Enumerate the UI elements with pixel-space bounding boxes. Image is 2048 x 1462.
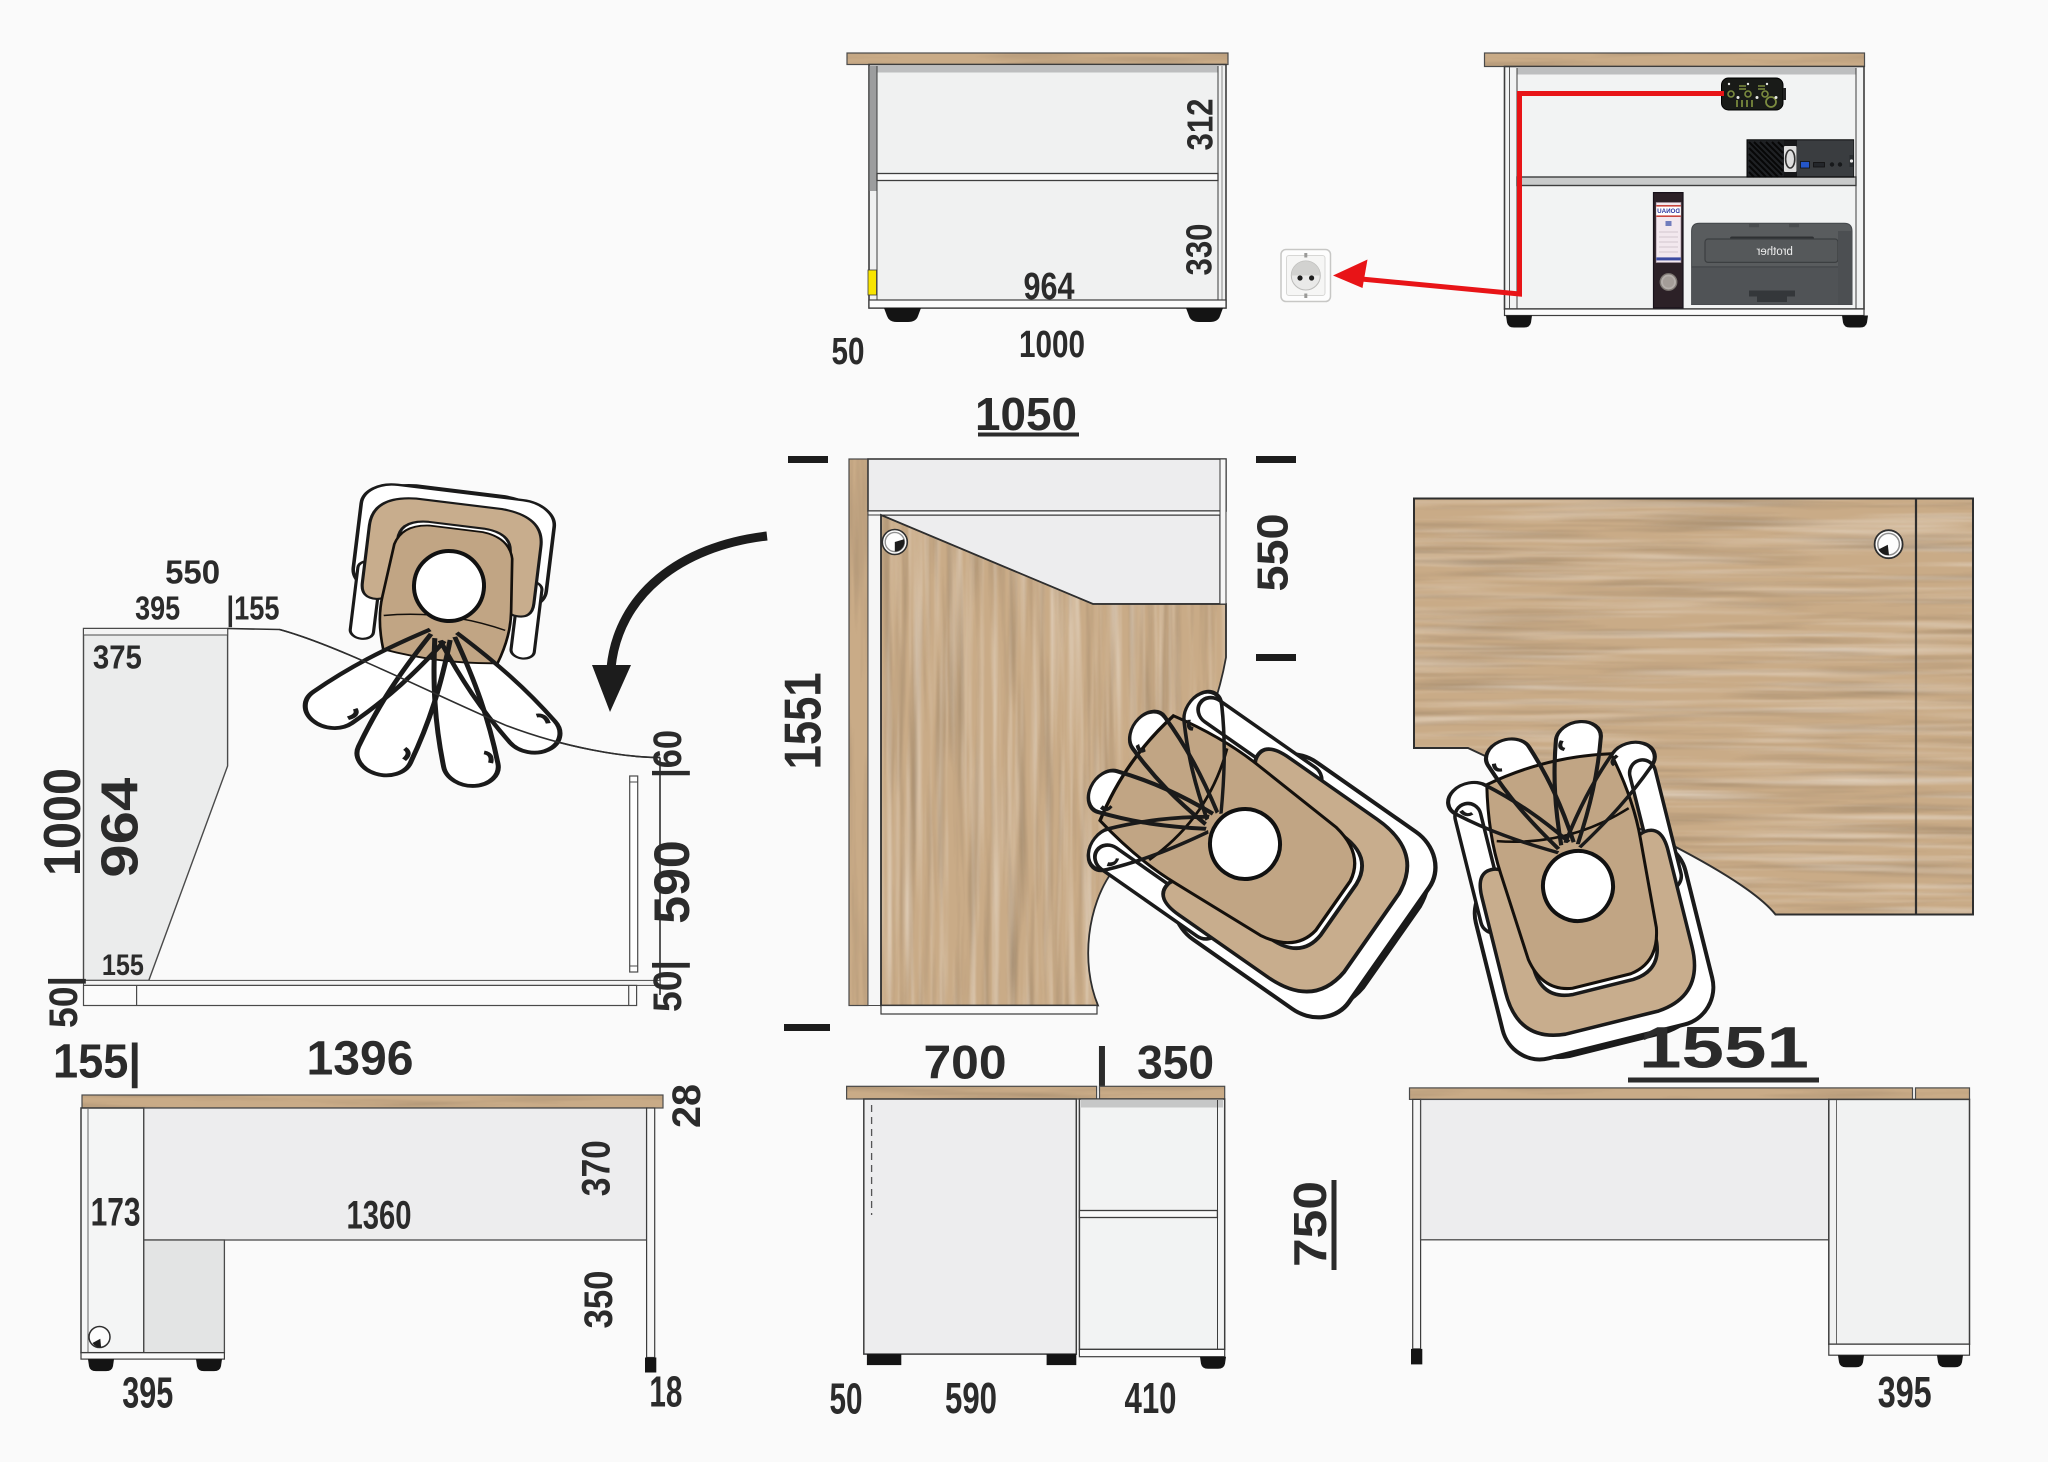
svg-text:750: 750 bbox=[1284, 1181, 1336, 1267]
svg-text:50: 50 bbox=[832, 331, 865, 373]
svg-text:1360: 1360 bbox=[347, 1194, 412, 1238]
svg-text:50|: 50| bbox=[646, 960, 690, 1012]
svg-text:50|: 50| bbox=[42, 976, 86, 1028]
svg-text:375: 375 bbox=[93, 639, 142, 676]
svg-text:395: 395 bbox=[1878, 1368, 1932, 1417]
svg-text:312: 312 bbox=[1180, 99, 1221, 151]
svg-text:370: 370 bbox=[575, 1140, 619, 1196]
svg-text:50: 50 bbox=[830, 1375, 863, 1424]
svg-text:350: 350 bbox=[577, 1271, 621, 1329]
svg-text:964: 964 bbox=[92, 778, 150, 878]
svg-text:155: 155 bbox=[102, 949, 144, 982]
svg-text:550: 550 bbox=[165, 554, 220, 591]
svg-text:395: 395 bbox=[122, 1368, 173, 1417]
svg-text:|: | bbox=[1095, 1038, 1108, 1091]
svg-text:1000: 1000 bbox=[34, 768, 92, 876]
svg-text:590: 590 bbox=[945, 1374, 997, 1423]
svg-text:1050: 1050 bbox=[975, 388, 1077, 440]
svg-text:350: 350 bbox=[1137, 1036, 1214, 1089]
svg-text:|60: |60 bbox=[646, 730, 690, 778]
svg-text:550: 550 bbox=[1248, 514, 1297, 592]
svg-text:964: 964 bbox=[1024, 266, 1075, 308]
svg-text:DONAU: DONAU bbox=[1657, 208, 1680, 215]
svg-text:1000: 1000 bbox=[1019, 324, 1085, 366]
svg-text:28: 28 bbox=[665, 1084, 709, 1128]
svg-text:590: 590 bbox=[644, 840, 700, 923]
svg-text:1551: 1551 bbox=[775, 672, 833, 769]
svg-text:brother: brother bbox=[1756, 246, 1793, 258]
svg-text:155|: 155| bbox=[53, 1036, 141, 1089]
svg-text:1551: 1551 bbox=[1639, 1016, 1809, 1081]
svg-text:410: 410 bbox=[1125, 1374, 1177, 1423]
svg-text:|155: |155 bbox=[227, 590, 280, 627]
svg-text:18: 18 bbox=[649, 1368, 682, 1417]
svg-text:330: 330 bbox=[1179, 224, 1220, 276]
svg-text:700: 700 bbox=[924, 1036, 1007, 1089]
svg-text:395: 395 bbox=[135, 590, 180, 627]
svg-text:173: 173 bbox=[91, 1191, 141, 1235]
svg-text:1396: 1396 bbox=[307, 1033, 414, 1086]
